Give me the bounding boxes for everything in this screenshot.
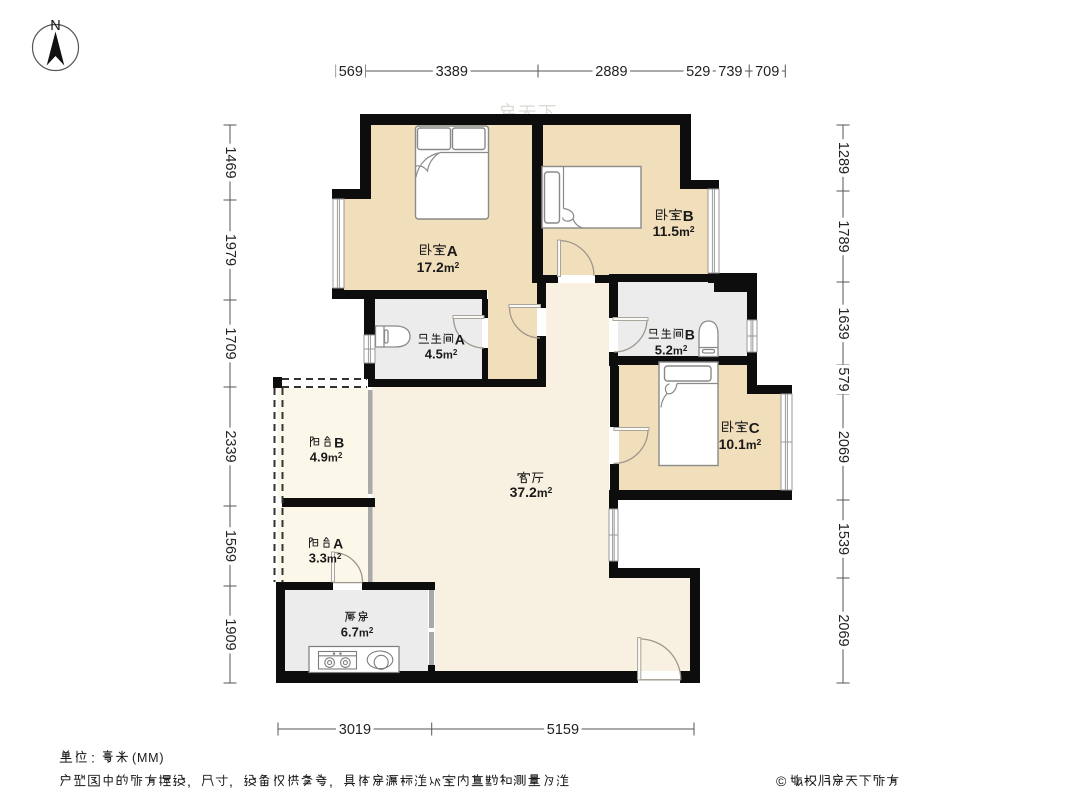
svg-text:3019: 3019 xyxy=(339,722,371,738)
svg-text:1709: 1709 xyxy=(222,327,238,359)
svg-text:B: B xyxy=(683,208,694,225)
svg-text:2339: 2339 xyxy=(222,430,238,462)
svg-text:1289: 1289 xyxy=(835,142,851,174)
svg-text:529: 529 xyxy=(686,64,710,80)
svg-text:17.2m2: 17.2m2 xyxy=(417,259,460,275)
svg-text:,: , xyxy=(229,773,233,789)
svg-text:1789: 1789 xyxy=(835,220,851,252)
svg-text:1909: 1909 xyxy=(222,618,238,650)
svg-text:B: B xyxy=(334,435,344,451)
svg-text:569: 569 xyxy=(339,64,363,80)
svg-text:1639: 1639 xyxy=(835,307,851,339)
svg-text:C: C xyxy=(749,420,760,437)
svg-text:B: B xyxy=(685,326,695,342)
svg-text:A: A xyxy=(333,536,343,552)
svg-text:N: N xyxy=(50,18,60,34)
svg-text:5159: 5159 xyxy=(547,722,579,738)
svg-text:2889: 2889 xyxy=(595,64,627,80)
svg-text:11.5m2: 11.5m2 xyxy=(653,223,695,239)
svg-text:10.1m2: 10.1m2 xyxy=(719,436,762,452)
svg-text:,: , xyxy=(329,773,333,789)
svg-text:A: A xyxy=(455,331,465,347)
svg-text::: : xyxy=(91,750,95,766)
svg-text:©: © xyxy=(776,773,787,789)
svg-text:(MM): (MM) xyxy=(132,751,164,765)
svg-text:1979: 1979 xyxy=(222,234,238,266)
svg-text:3389: 3389 xyxy=(436,64,468,80)
svg-text:579: 579 xyxy=(835,367,851,391)
svg-text:1469: 1469 xyxy=(222,146,238,178)
svg-text:A: A xyxy=(447,243,458,260)
svg-text:709: 709 xyxy=(755,64,779,80)
svg-text:1539: 1539 xyxy=(835,523,851,555)
svg-text:1569: 1569 xyxy=(222,530,238,562)
svg-text:2069: 2069 xyxy=(835,614,851,646)
svg-text:,: , xyxy=(187,773,191,789)
svg-text:37.2m2: 37.2m2 xyxy=(510,484,553,500)
svg-text:739: 739 xyxy=(718,64,742,80)
svg-text:2069: 2069 xyxy=(835,431,851,463)
